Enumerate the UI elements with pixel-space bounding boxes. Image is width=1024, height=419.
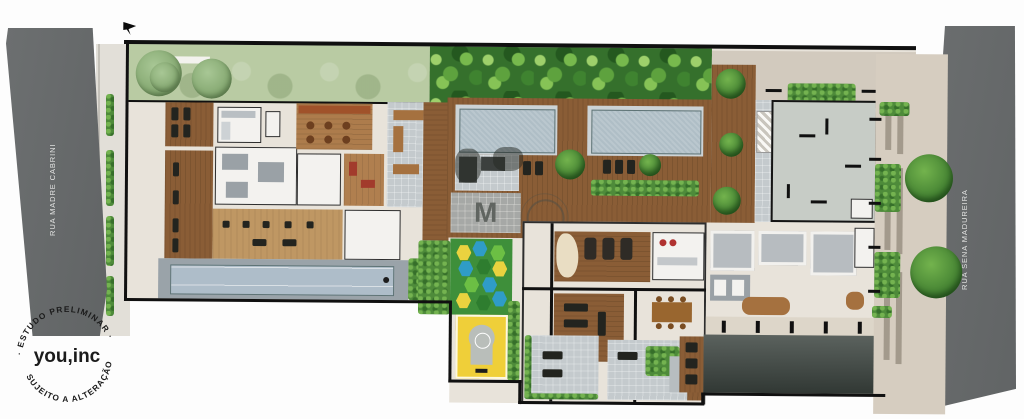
unit-block [810, 231, 856, 275]
hammock [173, 190, 179, 204]
patio-desk [542, 369, 562, 377]
stool [659, 239, 666, 246]
cabinet [685, 358, 697, 368]
tree-icon [150, 62, 180, 92]
boundary-bottom [518, 401, 704, 405]
gym-equipment [252, 239, 266, 246]
wall-stub [811, 200, 827, 203]
reception-desk [742, 297, 790, 315]
kitchen-island [265, 111, 280, 137]
lounger [183, 107, 190, 120]
outdoor-sofa [393, 126, 403, 152]
lot-tick [869, 118, 881, 121]
street-tree-icon [910, 246, 962, 298]
lot-tick [869, 158, 881, 161]
stamp-brand: you,inc [34, 346, 101, 367]
shrub-icon [639, 154, 661, 176]
table [342, 122, 350, 130]
wall-block [222, 154, 248, 170]
wall-block [258, 162, 284, 182]
column [790, 321, 794, 333]
watermark: M [451, 193, 521, 234]
garage-storage [679, 336, 703, 392]
palm-shadow [493, 147, 523, 171]
table [324, 136, 332, 144]
tree-icon [192, 58, 232, 98]
unit-block [710, 231, 754, 271]
gym [212, 209, 342, 260]
counter [221, 122, 230, 140]
pool-ladder [383, 277, 389, 283]
lot-tick [862, 90, 876, 93]
hedge [507, 301, 520, 381]
outdoor-sofa [393, 110, 423, 120]
lounge [344, 154, 384, 206]
boundary-bottom [701, 392, 885, 396]
column [722, 321, 726, 333]
spa-counter [556, 233, 578, 277]
hammock [172, 238, 178, 252]
tree-icon [719, 133, 743, 157]
unit-block [758, 231, 806, 265]
lot-tick [868, 246, 880, 249]
tree-icon [713, 187, 741, 215]
lounger [615, 160, 623, 174]
elevators [710, 275, 750, 301]
elevator-cab [714, 280, 726, 296]
cabinet [686, 342, 698, 352]
palm-shadow [455, 149, 481, 183]
column [858, 322, 862, 334]
patio [524, 335, 599, 400]
lap-pool [170, 264, 394, 296]
wall-stub [845, 165, 861, 168]
north-arrow-icon [123, 22, 136, 35]
outdoor-sofa [393, 164, 419, 174]
preliminary-stamp: · ESTUDO PRELIMINAR · SUJEITO A ALTERAÇÃ… [8, 298, 126, 416]
lounger [171, 107, 178, 120]
boundary-step [448, 380, 521, 384]
desk [564, 303, 588, 311]
lounger [171, 124, 178, 137]
lot-tick [869, 202, 881, 205]
garden-walkway [422, 102, 449, 240]
table [306, 121, 314, 129]
counter [657, 257, 697, 265]
chair [668, 296, 674, 302]
swimming-pool [591, 110, 701, 155]
deck-hammocks [164, 150, 213, 258]
gym-equipment [263, 221, 270, 228]
chair [680, 323, 686, 329]
cabinet [685, 374, 697, 384]
kitchen [217, 107, 261, 143]
banquette [298, 105, 370, 114]
street-tree-icon [905, 154, 953, 202]
chair [680, 296, 686, 302]
gym-equipment [307, 221, 314, 228]
tower-footprint [771, 100, 878, 223]
hedge [879, 102, 909, 116]
massage-bed [620, 238, 632, 260]
site-plan-canvas: RUA MADRE CABRINI RUA SENA MADUREIRA [0, 0, 1024, 419]
lounger [523, 161, 531, 175]
gym-equipment [282, 239, 296, 246]
column [756, 321, 760, 333]
hammock [173, 162, 179, 176]
gourmet-kitchen [652, 232, 704, 280]
wall-stub [787, 184, 790, 198]
sofa [349, 162, 357, 176]
dining-room [638, 292, 704, 337]
gym-equipment [223, 221, 230, 228]
massage-bed [584, 238, 596, 260]
wall-stub [825, 118, 828, 134]
table [324, 122, 332, 130]
restaurant [296, 103, 372, 150]
paving-strip [897, 110, 903, 154]
unit-rooms [297, 153, 341, 205]
lounger [183, 124, 190, 137]
watermark-letter: M [474, 197, 498, 229]
wall-stub [799, 134, 815, 137]
lot-tick [868, 290, 880, 293]
desk [598, 312, 606, 336]
chair [668, 323, 674, 329]
hedge [524, 393, 598, 400]
wall-block [226, 182, 248, 198]
unit-rooms [215, 147, 297, 206]
stool [669, 239, 676, 246]
lounger [603, 160, 611, 174]
boundary-step [448, 301, 452, 383]
tree-icon [716, 69, 746, 99]
hedge [524, 335, 532, 399]
sofa [361, 180, 375, 188]
unit-rooms [344, 210, 400, 260]
spa-room [554, 231, 650, 282]
counter [221, 111, 255, 118]
patio-desk [618, 352, 638, 360]
table [342, 136, 350, 144]
lobby-chair [846, 292, 864, 310]
gym-equipment [243, 221, 250, 228]
chair [656, 323, 662, 329]
shrub-icon [555, 149, 585, 179]
chair [656, 296, 662, 302]
patio-desk [543, 351, 563, 359]
court-circle [475, 333, 491, 349]
table [306, 135, 314, 143]
hedge [872, 306, 892, 318]
lounger [535, 161, 543, 175]
elevator-cab [732, 280, 744, 296]
gym-equipment [285, 221, 292, 228]
basketball-hoop [475, 369, 487, 373]
hammock [173, 218, 179, 232]
hedge [591, 180, 699, 197]
dining-table [652, 302, 692, 322]
deck-loungers [165, 102, 213, 146]
lot-tick [766, 89, 782, 92]
desk [564, 319, 588, 327]
lounger [627, 160, 635, 174]
column [824, 321, 828, 333]
massage-bed [602, 238, 614, 260]
driveway-ramp [703, 335, 875, 394]
plan: M [0, 0, 1024, 419]
